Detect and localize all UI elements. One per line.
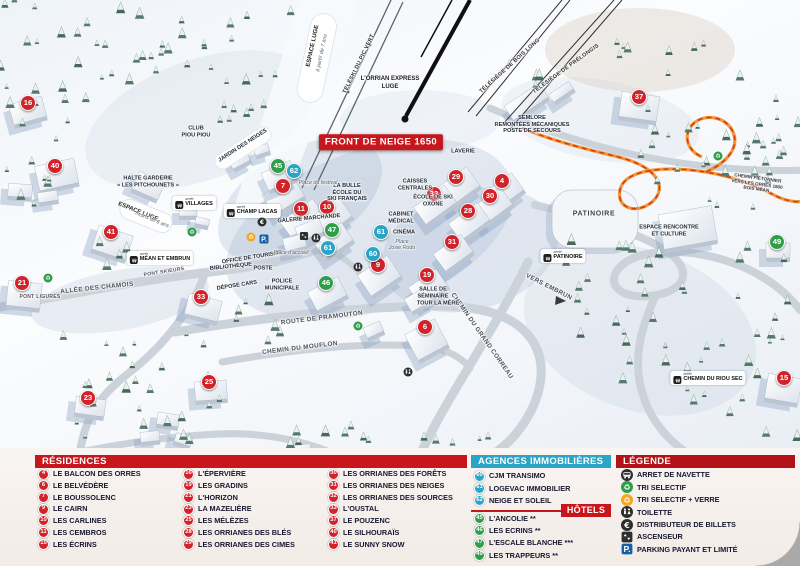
legend-label: L'ANCOLIE ** [489, 515, 536, 522]
resort-map-poster: FRONT DE NEIGE 1650 16404121332325711109… [0, 0, 800, 566]
toilet-icon [354, 263, 363, 272]
agence-item-60: 60CJM TRANSIMO [474, 470, 545, 482]
marker-number: 60 [474, 471, 485, 482]
residences-header: RÉSIDENCES [35, 455, 467, 468]
map-label: ESPACE RENCONTREET CULTURE [639, 224, 699, 237]
marker-number: 62 [474, 495, 485, 506]
legend-label: LE SILHOURAÏS [343, 529, 399, 536]
marker-number: 45 [474, 513, 485, 524]
map-marker-6: 6 [417, 319, 433, 335]
legend-label: LA MAZELIÈRE [198, 505, 252, 512]
svg-text:♻: ♻ [355, 323, 360, 330]
bus-icon [673, 376, 681, 384]
map-marker-4: 4 [494, 173, 510, 189]
map-marker-28: 28 [460, 203, 476, 219]
bus-stop-chemin-du-riou-sec: arrêtCHEMIN DU RIOU SEC [670, 371, 745, 385]
residence-item-33: 33L'OUSTAL [328, 503, 379, 515]
legend-label: LES ORRIANES DES NEIGES [343, 482, 444, 489]
marker-number: 15 [38, 539, 49, 550]
residence-item-9: 9LE CAIRN [38, 503, 87, 515]
map-marker-31: 31 [444, 234, 460, 250]
marker-number: 41 [328, 539, 339, 550]
legend-label: L'OUSTAL [343, 505, 379, 512]
map-label: CAISSESCENTRALES [398, 178, 432, 191]
marker-number: 21 [183, 492, 194, 503]
svg-text:€: € [623, 520, 629, 529]
marker-number: 19 [183, 480, 194, 491]
bus-stop-patinoire: arrêtPATINOIRE [540, 249, 585, 263]
residence-item-28: 28LES ORRIANES DES BLÉS [183, 527, 291, 539]
legend-label: L'ÉPERVIÈRE [198, 470, 246, 477]
map-label: SEMLOREREMONTÉES MÉCANIQUESPOSTE DE SECO… [495, 115, 570, 135]
bus-icon [227, 209, 235, 217]
map-label: CINÉMA [393, 230, 415, 237]
map-label: POLICEMUNICIPALE [265, 278, 299, 291]
map-label: CHEMIN PIÉTONNIERVERS LES ORRES 1800BOIS… [730, 172, 784, 196]
map-label: SALLE DESÉMINAIRE [417, 286, 448, 299]
residence-item-41: 41LE SUNNY SNOW [328, 538, 405, 550]
recycle-green-icon: ♻ [354, 322, 363, 331]
page-corner [756, 522, 800, 566]
svg-text:♻: ♻ [623, 496, 630, 505]
residence-item-19: 19LES GRADINS [183, 480, 248, 492]
recycle-green-icon: ♻ [714, 152, 723, 161]
svg-text:P.: P. [261, 235, 267, 244]
map-marker-49: 49 [769, 234, 785, 250]
legend-label: L'HORIZON [198, 494, 238, 501]
legend-label: LES TRAPPEURS ** [489, 552, 558, 559]
marker-number: 25 [183, 515, 194, 526]
legend-label: LE POUZENC [343, 517, 390, 524]
map-label: Place d'accueil [273, 250, 308, 256]
stop-name: CHEMIN DU RIOU SEC [683, 377, 742, 383]
map-label: CHEMIN DU MOUFLON [262, 340, 338, 356]
marker-number: 11 [38, 527, 49, 538]
legend-label: LE CAIRN [53, 505, 87, 512]
atm-icon: € [258, 218, 267, 227]
map-label: TÉLÉSIÈGE DE PRÉLONGIS [532, 43, 601, 95]
legend-panel: RÉSIDENCES AGENCES IMMOBILIÈRES LÉGENDE … [0, 448, 800, 566]
legend-label: PARKING PAYANT ET LIMITÉ [637, 546, 738, 553]
agence-item-62: 62NEIGE ET SOLEIL [474, 495, 551, 507]
map-marker-47: 47 [324, 222, 340, 238]
agences-header: AGENCES IMMOBILIÈRES [471, 455, 611, 468]
legend-label: LES MÉLÈZES [198, 517, 249, 524]
map-marker-40: 40 [47, 158, 63, 174]
marker-number: 29 [183, 539, 194, 550]
marker-number: 30 [328, 469, 339, 480]
hotel-item-46: 46LES ECRINS ** [474, 525, 541, 537]
hotel-item-45: 45L'ANCOLIE ** [474, 513, 536, 525]
map-marker-60: 60 [365, 246, 381, 262]
residence-item-40: 40LE SILHOURAÏS [328, 527, 399, 539]
bus-icon [130, 256, 138, 264]
bus-stop-villages: arrêtVILLAGES [172, 196, 216, 210]
legend-label: LES CEMBROS [53, 529, 107, 536]
map-label: CHEMIN DU GRAND CORREAU [450, 292, 515, 381]
map-marker-29: 29 [448, 169, 464, 185]
legend-label: ASCENSEUR [637, 533, 683, 540]
stop-name: CHAMP LACAS [237, 210, 278, 216]
svg-text:♻: ♻ [45, 275, 50, 282]
svg-text:♻: ♻ [248, 234, 253, 241]
legend-label: L'ESCALE BLANCHE *** [489, 539, 573, 546]
marker-number: 10 [38, 515, 49, 526]
map-marker-15: 15 [776, 370, 792, 386]
hotel-item-47: 47L'ESCALE BLANCHE *** [474, 537, 573, 549]
legende-item-atm: €DISTRIBUTEUR DE BILLETS [621, 519, 736, 531]
legende-item-toilet: TOILETTE [621, 506, 672, 518]
bus-icon [621, 469, 633, 481]
legend-label: LES ORRIANES DES FORÊTS [343, 470, 446, 477]
marker-number: 7 [38, 492, 49, 503]
elevator-icon [621, 531, 633, 543]
map-label: LA BULLEÉCOLE DUSKI FRANÇAIS [327, 183, 367, 203]
map-label: DÉPOSE CARS [216, 280, 257, 293]
map-marker-25: 25 [201, 374, 217, 390]
legende-item-recycle-orange: ♻TRI SELECTIF + VERRE [621, 494, 720, 506]
residence-item-21: 21L'HORIZON [183, 491, 238, 503]
map-label: ALLÉE DES CHAMOIS [60, 281, 134, 296]
legend-label: LES ORRIANES DES CIMES [198, 541, 295, 548]
map-label: TÉLÉSIÈGE DE BOIS LONG [479, 37, 542, 94]
marker-number: 16 [183, 469, 194, 480]
marker-number: 40 [328, 527, 339, 538]
legend-label: TRI SELECTIF + VERRE [637, 496, 720, 503]
legend-label: LE BALCON DES ORRES [53, 470, 141, 477]
marker-number: 28 [183, 527, 194, 538]
marker-number: 31 [328, 480, 339, 491]
map-label: PONT SKIEURS [143, 266, 185, 278]
hotel-item-49: 49LES TRAPPEURS ** [474, 549, 558, 561]
svg-text:♻: ♻ [189, 229, 194, 236]
marker-number: 61 [474, 483, 485, 494]
map-marker-30: 30 [482, 188, 498, 204]
map-label: LAVERIE [451, 149, 475, 156]
map-marker-11: 11 [293, 201, 309, 217]
residence-item-32: 32LES ORRIANES DES SOURCES [328, 491, 453, 503]
marker-number: 23 [183, 504, 194, 515]
legende-item-elevator: ASCENSEUR [621, 531, 683, 543]
legende-item-parking: P.PARKING PAYANT ET LIMITÉ [621, 543, 738, 555]
map-marker-33: 33 [193, 289, 209, 305]
map-label: ÉCOLE DE SKIOXONE [413, 194, 452, 207]
map-label: moins de 6 ans [134, 210, 170, 229]
map-marker-61: 61 [320, 240, 336, 256]
bus-icon [543, 254, 551, 262]
map-marker-45: 45 [270, 158, 286, 174]
marker-number: 6 [38, 480, 49, 491]
legend-label: NEIGE ET SOLEIL [489, 497, 551, 504]
hotels-header: HÔTELS [561, 504, 611, 517]
map-label: JARDIN DES NEIGES [217, 128, 268, 164]
legende-item-bus: ARRET DE NAVETTE [621, 469, 710, 481]
stop-name: MÉAN ET EMBRUN [140, 257, 190, 263]
residence-item-6: 6LE BELVÉDÈRE [38, 480, 108, 492]
legend-label: LE SUNNY SNOW [343, 541, 405, 548]
map-label: PlaceJosie Rodo [389, 239, 416, 251]
legend-label: LES ÉCRINS [53, 541, 97, 548]
marker-number: 9 [38, 504, 49, 515]
map-area: FRONT DE NEIGE 1650 16404121332325711109… [0, 0, 800, 452]
marker-number: 32 [328, 492, 339, 503]
legend-label: LES ORRIANES DES SOURCES [343, 494, 453, 501]
recycle-green-icon: ♻ [188, 228, 197, 237]
map-marker-46: 46 [318, 275, 334, 291]
residence-item-37: 37LE POUZENC [328, 515, 390, 527]
residence-item-25: 25LES MÉLÈZES [183, 515, 249, 527]
residence-item-29: 29LES ORRIANES DES CIMES [183, 538, 295, 550]
legend-label: LES ECRINS ** [489, 527, 541, 534]
legend-label: CJM TRANSIMO [489, 472, 545, 479]
toilet-icon [621, 506, 633, 518]
map-label: POSTE [254, 266, 273, 273]
map-marker-37: 37 [631, 89, 647, 105]
map-marker-21: 21 [14, 275, 30, 291]
bus-stop-champ-lacas: arrêtCHAMP LACAS [224, 204, 281, 218]
legend-label: LES CARLINES [53, 517, 107, 524]
recycle-green-icon: ♻ [44, 274, 53, 283]
legend-label: LOGEVAC IMMOBILIER [489, 485, 570, 492]
map-label: L'ORRIAN EXPRESS [361, 76, 420, 82]
map-label: ROUTE DE PRAMOUTON [281, 309, 364, 326]
marker-number: 33 [328, 504, 339, 515]
map-marker-19: 19 [419, 267, 435, 283]
map-label: CABINETMÉDICAL [388, 211, 413, 224]
recycle-orange-icon: ♻ [621, 494, 633, 506]
parking-icon: P. [621, 543, 633, 555]
map-label: HALTE GARDERIE« LES PITCHOUNETS » [117, 175, 179, 188]
residence-item-7: 7LE BOUSSOLENC [38, 491, 116, 503]
residence-item-23: 23LA MAZELIÈRE [183, 503, 252, 515]
map-marker-16: 16 [20, 95, 36, 111]
residence-item-10: 10LES CARLINES [38, 515, 107, 527]
marker-number: 37 [328, 515, 339, 526]
legend-label: DISTRIBUTEUR DE BILLETS [637, 521, 736, 528]
marker-number: 47 [474, 538, 485, 549]
map-marker-7: 7 [275, 178, 291, 194]
marker-number: 46 [474, 525, 485, 536]
svg-text:♻: ♻ [715, 153, 720, 160]
bus-icon [175, 201, 183, 209]
legend-label: LES ORRIANES DES BLÉS [198, 529, 291, 536]
svg-text:€: € [259, 220, 264, 226]
map-layer: FRONT DE NEIGE 1650 16404121332325711109… [0, 0, 800, 452]
bus-stop-m-an-et-embrun: arrêtMÉAN ET EMBRUN [127, 251, 193, 265]
atm-icon: € [621, 519, 633, 531]
toilet-icon [404, 368, 413, 377]
residence-item-31: 31LES ORRIANES DES NEIGES [328, 480, 444, 492]
map-label: TÉLÉSKI DU PIC VERT [342, 33, 376, 94]
map-marker-62: 62 [286, 163, 302, 179]
legende-header: LÉGENDE [616, 455, 795, 468]
legend-label: LE BOUSSOLENC [53, 494, 116, 501]
marker-number: 4 [38, 469, 49, 480]
map-label: CLUBPIOU PIOU [182, 125, 211, 138]
legend-label: TOILETTE [637, 509, 672, 516]
agence-item-61: 61LOGEVAC IMMOBILIER [474, 482, 570, 494]
toilet-icon [312, 234, 321, 243]
svg-text:♻: ♻ [623, 483, 630, 492]
parking-icon: P. [259, 234, 269, 244]
residence-item-16: 16L'ÉPERVIÈRE [183, 468, 246, 480]
legend-label: ARRET DE NAVETTE [637, 471, 710, 478]
legend-label: LES GRADINS [198, 482, 248, 489]
stop-name: PATINOIRE [553, 255, 582, 261]
residence-item-15: 15LES ÉCRINS [38, 538, 97, 550]
legend-label: LE BELVÉDÈRE [53, 482, 108, 489]
recycle-orange-icon: ♻ [247, 233, 256, 242]
map-marker-23: 23 [80, 390, 96, 406]
map-label: PATINOIRE [573, 211, 615, 218]
legende-item-recycle-green: ♻TRI SELECTIF [621, 481, 686, 493]
map-label: Place du festival [299, 180, 338, 186]
recycle-green-icon: ♻ [621, 481, 633, 493]
residence-item-30: 30LES ORRIANES DES FORÊTS [328, 468, 446, 480]
map-label: TOUR LA MÈRE [417, 301, 459, 308]
map-label: PONT LIGURES [19, 294, 60, 300]
map-label: VERS EMBRUN [525, 272, 574, 301]
legend-label: TRI SELECTIF [637, 484, 686, 491]
map-marker-61: 61 [373, 224, 389, 240]
front-de-neige-banner: FRONT DE NEIGE 1650 [319, 134, 443, 150]
map-marker-41: 41 [103, 224, 119, 240]
residence-item-11: 11LES CEMBROS [38, 527, 107, 539]
map-label: LUGE [382, 84, 399, 90]
residence-item-4: 4LE BALCON DES ORRES [38, 468, 141, 480]
svg-text:P.: P. [623, 545, 630, 555]
stop-name: VILLAGES [185, 202, 213, 208]
elevator-icon [300, 232, 309, 241]
marker-number: 49 [474, 550, 485, 561]
